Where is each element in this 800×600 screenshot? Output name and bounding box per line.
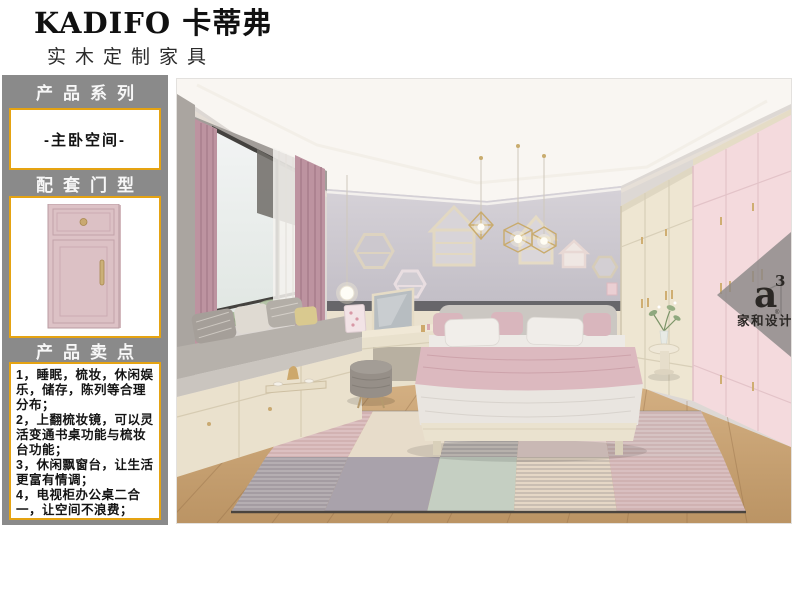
bedroom-scene: a 3 ® 家和设计 xyxy=(177,79,791,523)
selling-point: 4，电视柜办公桌二合一，让空间不浪费； xyxy=(16,488,154,518)
brand-tagline: 实木定制家具 xyxy=(47,42,215,69)
teacup-icon xyxy=(305,379,314,383)
door-sample-box xyxy=(9,196,161,338)
series-value-box: -主卧空间- xyxy=(9,108,161,170)
door-panel xyxy=(53,240,114,323)
watermark-logo-sup: 3 xyxy=(775,272,785,290)
selling-point: 1，睡眠，梳妆，休闲娱乐，储存，陈列等合理分布； xyxy=(16,368,154,413)
perfume-bottle xyxy=(421,325,425,332)
watermark-brand: 家和设计 xyxy=(737,313,791,328)
selling-points-box: 1，睡眠，梳妆，休闲娱乐，储存，陈列等合理分布； 2，上翻梳妆镜，可以灵活变通书… xyxy=(9,362,161,520)
door-handle xyxy=(100,260,104,285)
drawer-knob xyxy=(80,219,87,226)
door-type-label: 配套门型 xyxy=(2,170,168,196)
selling-point: 2，上翻梳妆镜，可以灵活变通书桌功能与梳妆台功能； xyxy=(16,413,154,458)
pink-blanket xyxy=(415,347,643,391)
poster-page: KADIFO 卡蒂弗 实木定制家具 产品系列 -主卧空间- 配套门型 产品卖点 … xyxy=(0,0,800,600)
hexagon-shelf-small xyxy=(593,257,617,277)
cabinet-knob xyxy=(268,407,272,411)
bedroom-render-image: a 3 ® 家和设计 xyxy=(176,78,792,524)
hexagon-shelf xyxy=(355,235,393,268)
cabinet-knob xyxy=(207,422,211,426)
series-label: 产品系列 xyxy=(2,75,168,108)
bed-leg xyxy=(615,441,623,455)
leaning-art xyxy=(344,304,366,332)
pouf-stool xyxy=(347,360,395,408)
brand-title: KADIFO 卡蒂弗 xyxy=(34,0,272,42)
series-value: -主卧空间- xyxy=(44,129,126,150)
bed-frame xyxy=(421,423,637,441)
cabinet-door-image xyxy=(47,204,123,330)
sidebar: 产品系列 -主卧空间- 配套门型 产品卖点 1，睡眠，梳妆，休闲娱乐，储存，陈列… xyxy=(2,75,168,525)
wall-art-pink xyxy=(607,283,617,295)
bed-leg xyxy=(433,441,441,455)
teacup-icon xyxy=(274,382,283,386)
selling-point: 3，休闲飘窗台，让生活更富有情调； xyxy=(16,458,154,488)
selling-points-label: 产品卖点 xyxy=(2,338,168,362)
globe-pendant-icon xyxy=(340,286,354,300)
bed xyxy=(407,305,647,462)
watermark-logo: a xyxy=(754,274,777,316)
